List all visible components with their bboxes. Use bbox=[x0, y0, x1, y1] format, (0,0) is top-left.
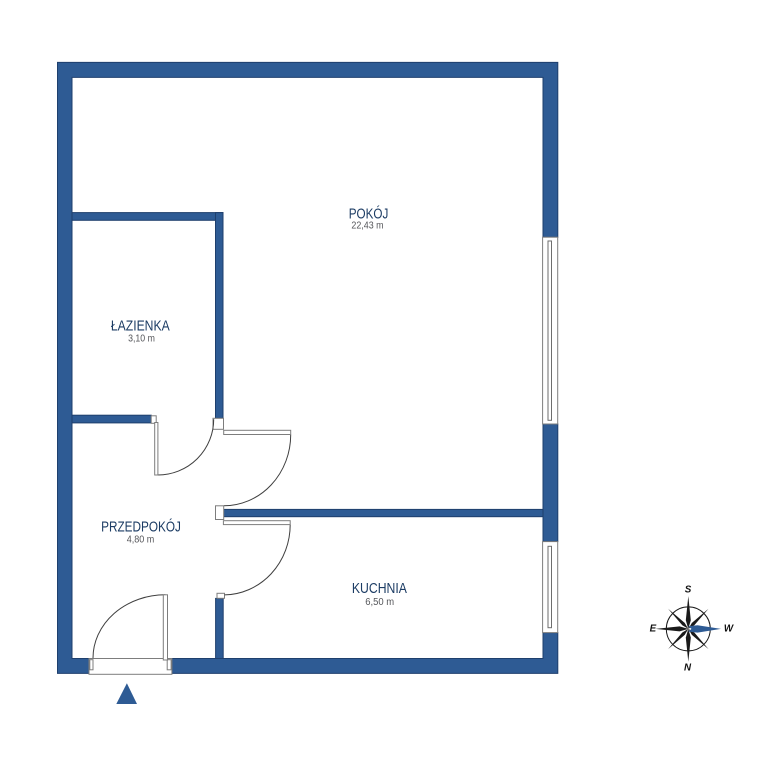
svg-text:KUCHNIA: KUCHNIA bbox=[352, 581, 407, 597]
svg-text:N: N bbox=[684, 662, 692, 673]
svg-text:4,80 m: 4,80 m bbox=[127, 535, 155, 546]
svg-text:ŁAZIENKA: ŁAZIENKA bbox=[111, 318, 170, 334]
svg-text:3,10 m: 3,10 m bbox=[128, 334, 155, 345]
svg-text:W: W bbox=[724, 624, 734, 635]
svg-text:22,43 m: 22,43 m bbox=[351, 221, 383, 232]
svg-text:S: S bbox=[685, 585, 692, 596]
svg-text:E: E bbox=[650, 624, 657, 635]
svg-text:6,50 m: 6,50 m bbox=[365, 597, 394, 608]
svg-text:PRZEDPOKÓJ: PRZEDPOKÓJ bbox=[101, 519, 181, 536]
